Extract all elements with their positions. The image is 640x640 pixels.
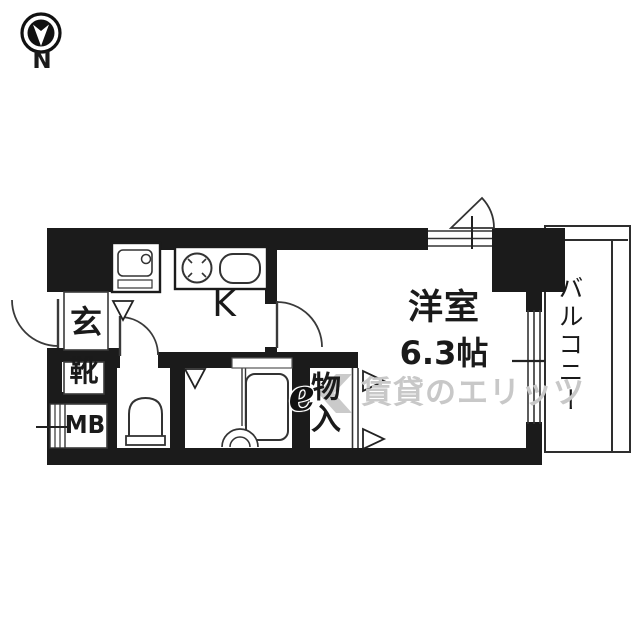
kitchen-counter-icon [175,247,267,289]
western-room-label: 洋室 [394,291,494,326]
washer-pan-icon [112,243,160,292]
shoe-box-label: 靴 [62,357,106,386]
kitchen-label: K [198,287,250,323]
entrance-door-arc [12,299,58,348]
closet-partition [353,368,359,448]
bathtub-icon [222,368,288,447]
balcony-label: バルコニー [557,275,582,451]
living-room-door-arc [277,301,322,348]
north-arrow-icon [22,14,60,52]
floor-plan: N 玄 靴 MB K 洋室 6.3帖 物入 バルコニー e 賃貸のエリッツ [0,0,640,640]
compass-north-label: N [29,50,55,73]
watermark-text: 賃貸のエリッツ [361,378,585,409]
watermark-logo-letter: e [286,374,318,420]
bath-door [232,358,292,368]
top-window [428,198,494,249]
entrance-label: 玄 [64,306,108,338]
meter-box-label: MB [64,412,106,437]
toilet-door-arc [120,316,158,356]
western-room-size: 6.3帖 [390,337,498,369]
toilet-icon [126,398,165,445]
